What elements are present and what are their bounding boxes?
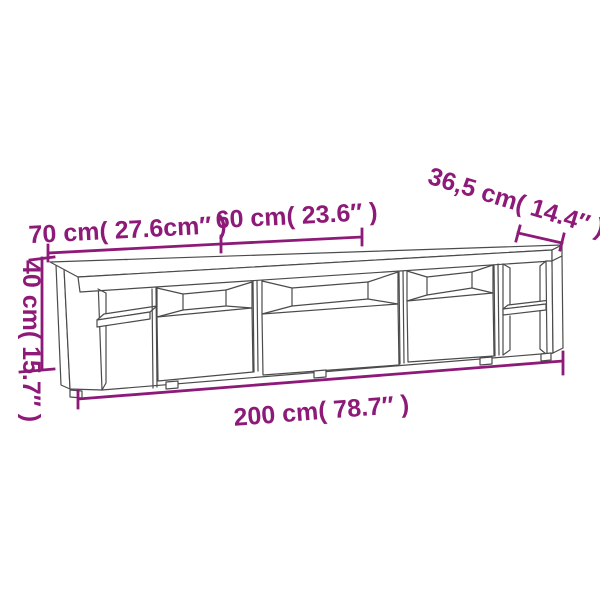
dimension-label-36-5cm: 36,5 cm( 14.4″ ) (425, 162, 600, 242)
drawer-1-front (157, 308, 253, 381)
foot (480, 357, 492, 365)
recess-3-back-wall (427, 272, 472, 295)
dimension-label-200cm: 200 cm( 78.7″ ) (233, 390, 411, 432)
recess-2-back-wall (292, 282, 368, 306)
divider-2-3 (399, 271, 404, 364)
dimension-label-40cm: 40 cm( 15.7″ ) (17, 260, 45, 422)
dimension-height: 40 cm( 15.7″ ) (17, 257, 54, 422)
dimension-depth: 36,5 cm( 14.4″ ) (425, 162, 600, 250)
dimension-label-70cm: 70 cm( 27.6cm″ ) (28, 211, 227, 249)
divider-left (152, 288, 157, 388)
tv-stand-dimension-diagram: 70 cm( 27.6cm″ ) 60 cm( 23.6″ ) 36,5 cm(… (0, 0, 600, 600)
recess-1-back-wall (183, 290, 226, 310)
drawer-3-front (407, 293, 494, 362)
dimension-left-section-width: 70 cm( 27.6cm″ ) (28, 211, 227, 261)
right-side-panel-side-face (552, 256, 563, 353)
foot (541, 353, 551, 361)
diagram-canvas: 70 cm( 27.6cm″ ) 60 cm( 23.6″ ) 36,5 cm(… (0, 0, 600, 600)
foot (166, 381, 178, 389)
drawer-2-front (262, 304, 399, 375)
dimension-label-60cm: 60 cm( 23.6″ ) (215, 198, 378, 234)
foot (70, 390, 82, 398)
tv-stand-drawing (50, 245, 563, 398)
dimension-middle-section-width: 60 cm( 23.6″ ) (215, 198, 378, 245)
divider-3-right (494, 264, 499, 356)
divider-1-2 (253, 281, 258, 372)
foot (314, 370, 326, 378)
